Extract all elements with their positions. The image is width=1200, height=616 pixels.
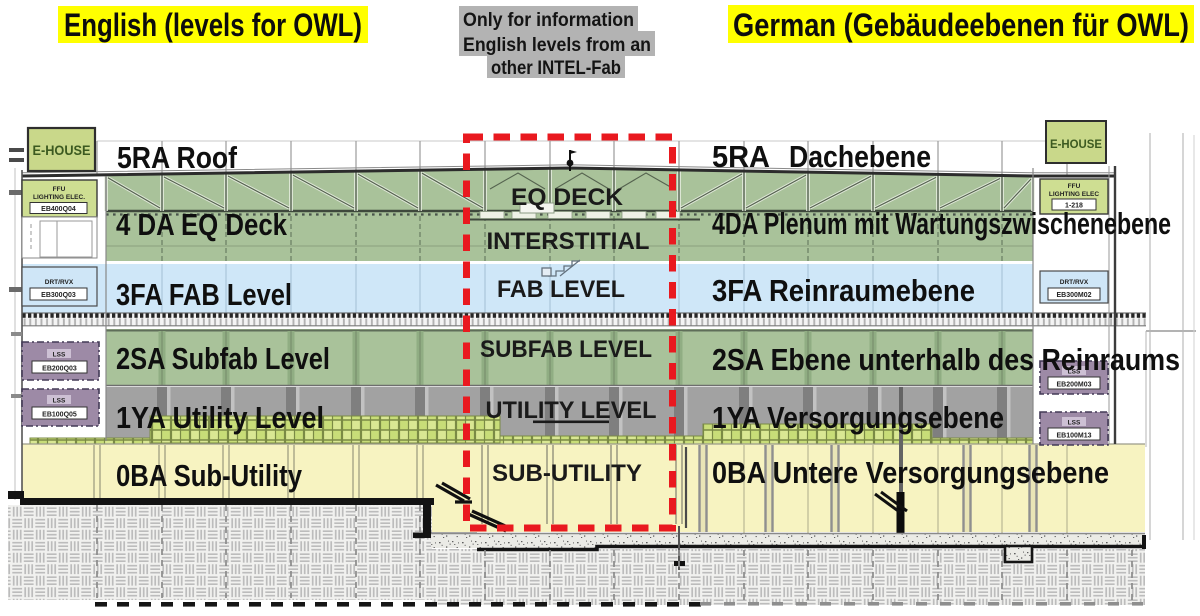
svg-text:EB100M13: EB100M13 <box>1056 433 1091 440</box>
svg-text:5RA Roof: 5RA Roof <box>117 140 238 175</box>
svg-text:LSS: LSS <box>53 352 66 359</box>
svg-text:EB200M03: EB200M03 <box>1056 382 1091 389</box>
svg-text:FAB LEVEL: FAB LEVEL <box>497 276 625 303</box>
svg-text:LSS: LSS <box>53 398 66 405</box>
svg-text:LIGHTING ELEC: LIGHTING ELEC <box>1049 191 1100 198</box>
svg-text:DRT/RVX: DRT/RVX <box>45 279 74 286</box>
svg-text:German (Gebäudeebenen für OWL): German (Gebäudeebenen für OWL) <box>733 7 1189 43</box>
svg-text:EQ DECK: EQ DECK <box>511 184 624 211</box>
svg-text:DRT/RVX: DRT/RVX <box>1060 279 1089 286</box>
svg-text:2SA Subfab Level: 2SA Subfab Level <box>116 341 330 376</box>
svg-text:3FA FAB Level: 3FA FAB Level <box>116 277 292 312</box>
svg-text:Dachebene: Dachebene <box>789 139 931 174</box>
svg-text:INTERSTITIAL: INTERSTITIAL <box>487 228 650 255</box>
svg-text:3FA Reinraumebene: 3FA Reinraumebene <box>712 273 975 308</box>
svg-text:E-HOUSE: E-HOUSE <box>33 143 91 158</box>
svg-text:0BA Sub-Utility: 0BA Sub-Utility <box>116 458 303 493</box>
svg-text:1YA Versorgungsebene: 1YA Versorgungsebene <box>712 400 1004 435</box>
svg-text:E-HOUSE: E-HOUSE <box>1050 137 1102 151</box>
svg-text:FFU: FFU <box>1068 183 1081 190</box>
svg-text:EB300M02: EB300M02 <box>1056 292 1091 299</box>
svg-text:5RA: 5RA <box>712 139 770 174</box>
svg-text:SUBFAB LEVEL: SUBFAB LEVEL <box>480 336 652 363</box>
svg-text:0BA Untere Versorgungsebene: 0BA Untere Versorgungsebene <box>712 455 1109 490</box>
svg-text:1YA Utility Level: 1YA Utility Level <box>116 400 324 435</box>
svg-text:FFU: FFU <box>53 186 66 193</box>
svg-text:EB300Q03: EB300Q03 <box>41 292 76 299</box>
svg-text:English levels from an: English levels from an <box>463 35 651 56</box>
svg-text:LIGHTING ELEC.: LIGHTING ELEC. <box>33 194 85 201</box>
svg-text:UTILITY LEVEL: UTILITY LEVEL <box>486 397 657 424</box>
svg-text:EB200Q03: EB200Q03 <box>42 366 77 373</box>
svg-text:EB100Q05: EB100Q05 <box>42 412 77 419</box>
svg-text:English (levels for OWL): English (levels for OWL) <box>64 7 362 43</box>
svg-text:Only for information: Only for information <box>463 10 634 31</box>
svg-text:EB400Q04: EB400Q04 <box>41 206 76 213</box>
svg-text:LSS: LSS <box>1068 420 1081 427</box>
svg-text:4 DA EQ Deck: 4 DA EQ Deck <box>116 207 288 242</box>
svg-text:4DA Plenum mit Wartungszwisch: 4DA Plenum mit Wartungszwischenebene <box>712 206 1171 241</box>
svg-text:SUB-UTILITY: SUB-UTILITY <box>492 460 642 487</box>
svg-text:other INTEL-Fab: other INTEL-Fab <box>491 58 621 79</box>
svg-text:2SA Ebene unterhalb des Reinra: 2SA Ebene unterhalb des Reinraums <box>712 342 1180 377</box>
